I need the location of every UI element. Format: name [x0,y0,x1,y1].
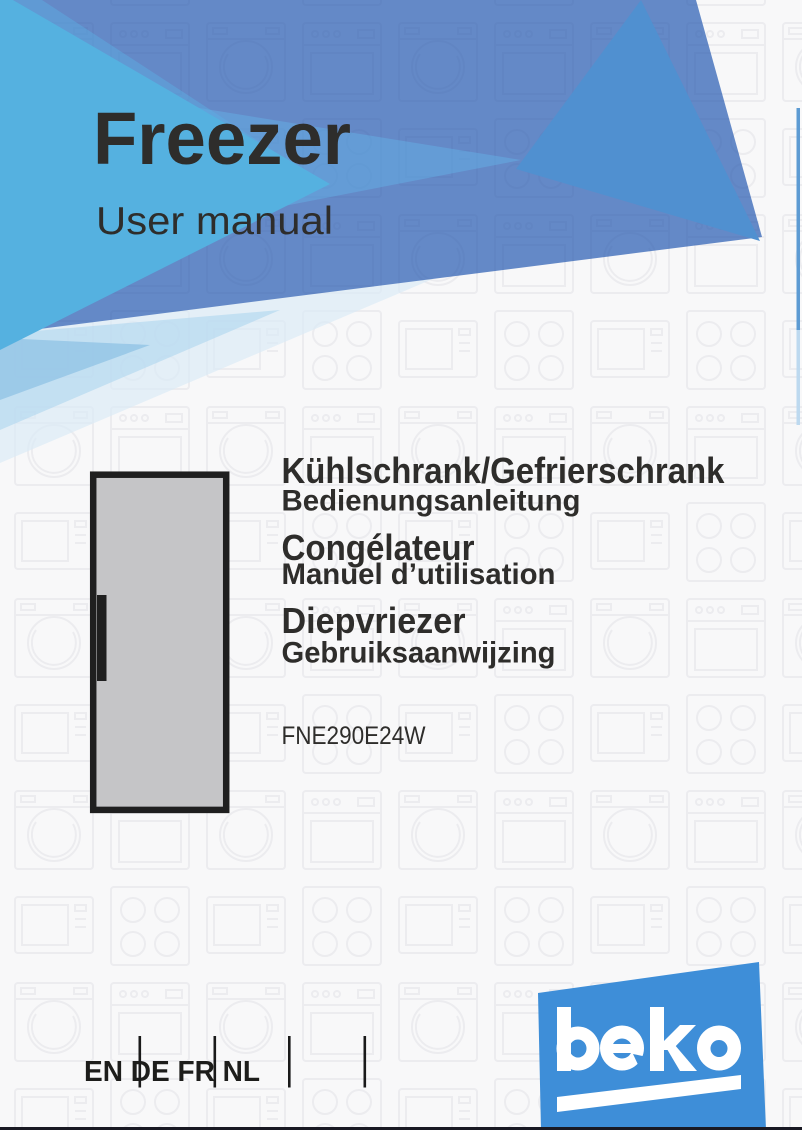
svg-text:Gebruiksaanwijzing: Gebruiksaanwijzing [282,637,556,670]
svg-text:Diepvriezer: Diepvriezer [282,600,466,641]
svg-text:Manuel d’utilisation: Manuel d’utilisation [282,558,556,591]
svg-text:User manual: User manual [96,200,333,243]
svg-text:Freezer: Freezer [93,97,351,180]
svg-text:FNE290E24W: FNE290E24W [282,722,426,750]
svg-text:EN DE FR NL: EN DE FR NL [84,1056,260,1088]
svg-text:Bedienungsanleitung: Bedienungsanleitung [282,485,581,518]
